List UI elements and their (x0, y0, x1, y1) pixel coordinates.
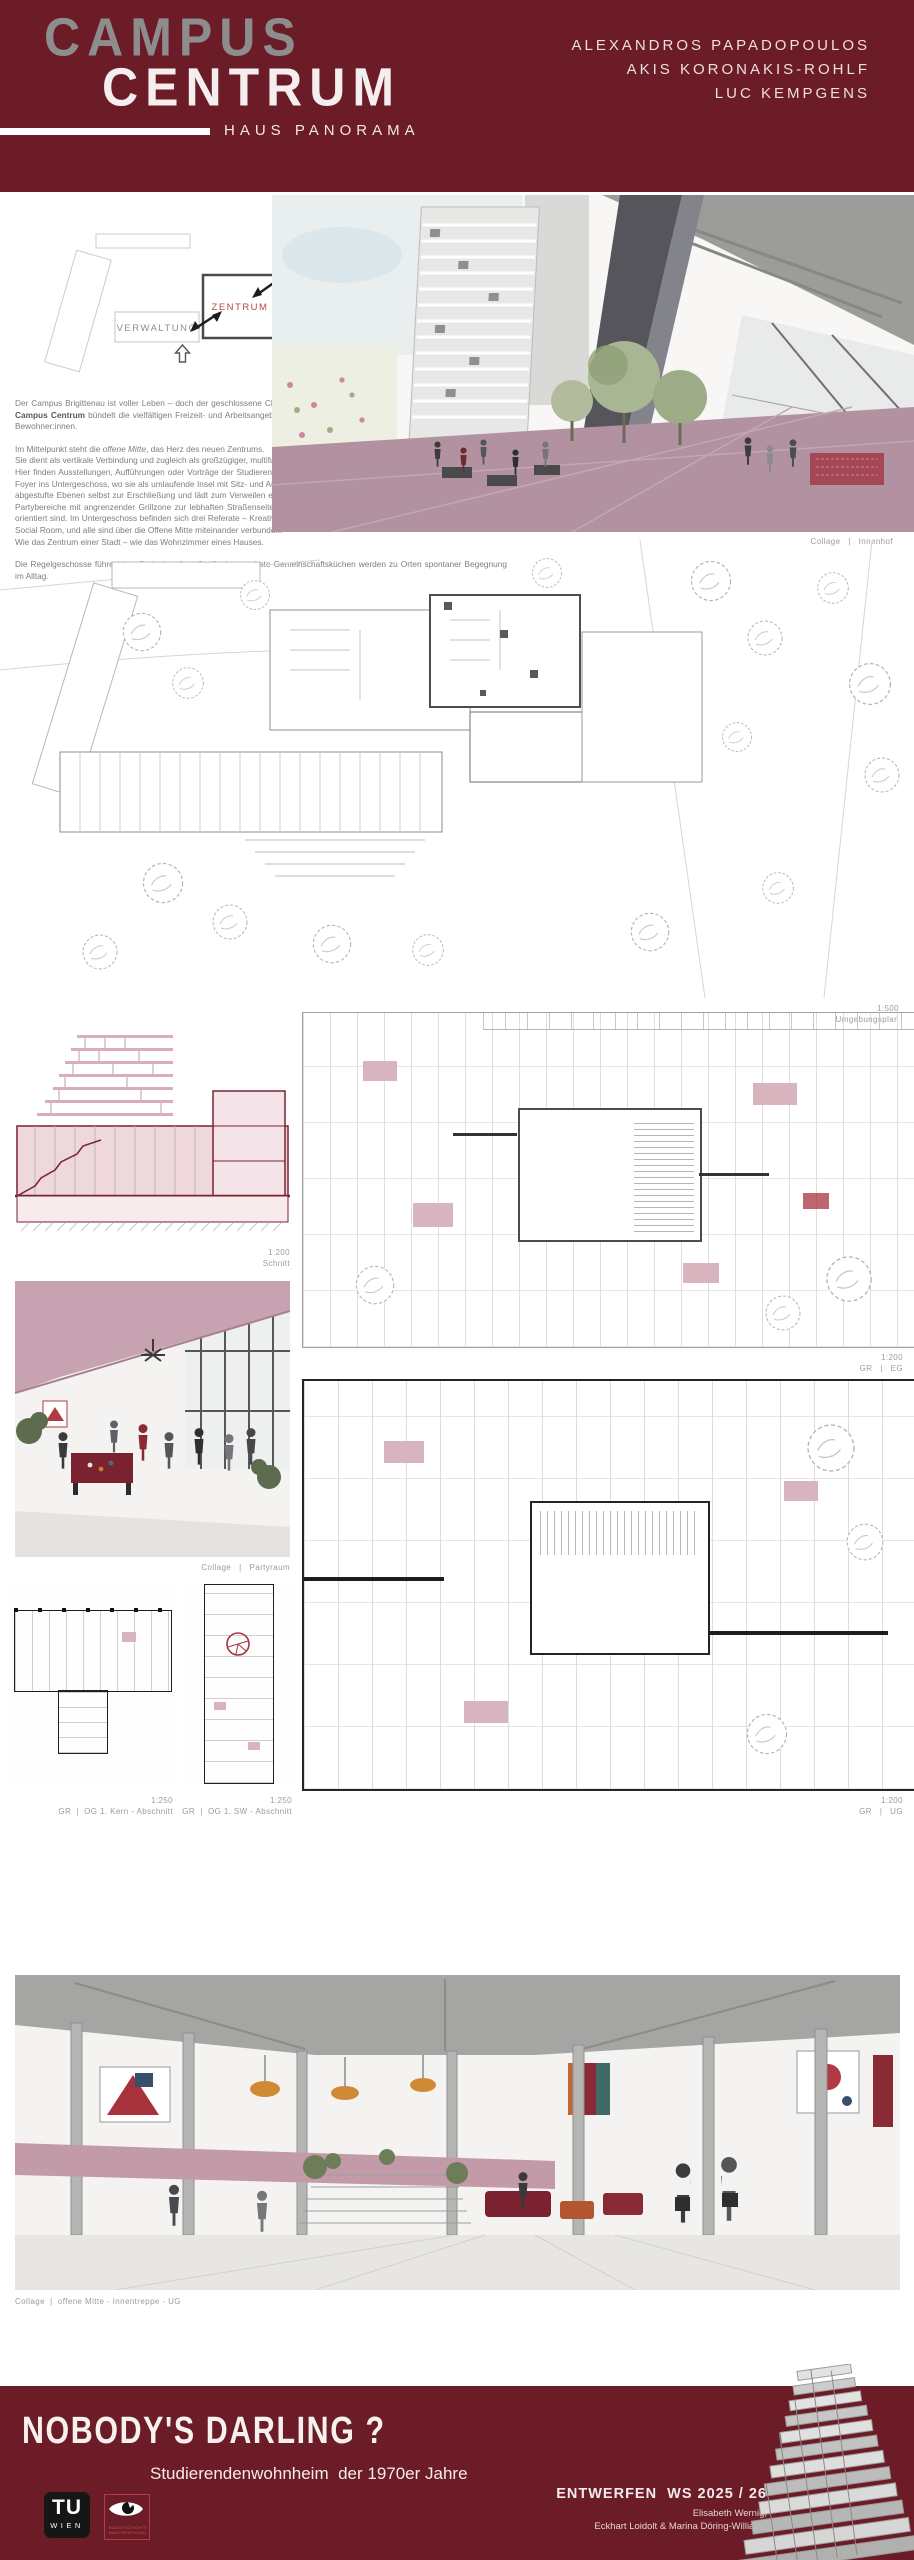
baugeschichte-eye-logo: BAUGESCHICHTEBAUFORSCHUNG (104, 2494, 150, 2540)
caption-gr-eg: 1:200GR | EG (860, 1352, 903, 1374)
caption-gr-ug: 1:200GR | UG (859, 1795, 903, 1817)
project-title: NOBODY'S DARLING ? (22, 2410, 386, 2453)
section-drawing (15, 1031, 290, 1243)
author-2: AKIS KORONAKIS-ROHLF (571, 58, 870, 82)
subtitle-haus-panorama: HAUS PANORAMA (224, 122, 420, 139)
plan-ug-trees (304, 1381, 914, 1789)
plan-og1-kern-furniture (122, 1632, 136, 1642)
up-arrow-icon (176, 345, 190, 362)
section-drawing-svg (15, 1031, 290, 1243)
plan-eg (302, 1012, 914, 1348)
caption-partyraum: Collage | Partyraum (201, 1562, 290, 1573)
header-band: CAMPUS CENTRUM HAUS PANORAMA ALEXANDROS … (0, 0, 914, 192)
author-3: LUC KEMPGENS (571, 82, 870, 106)
collage-offene-mitte (15, 1975, 900, 2290)
plan-og1-kern-columns (14, 1608, 170, 1612)
plan-og1-kern-band (14, 1610, 172, 1692)
author-list: ALEXANDROS PAPADOPOULOS AKIS KORONAKIS-R… (571, 34, 870, 106)
collage-partyraum (15, 1281, 290, 1557)
label-zentrum: ZENTRUM (212, 302, 269, 313)
collage-offene-mitte-drawing (15, 1975, 900, 2290)
project-subtitle: Studierendenwohnheim der 1970er Jahre (150, 2464, 468, 2484)
caption-og1-kern: 1:250GR | OG 1. Kern - Abschnitt (58, 1795, 173, 1817)
collage-partyraum-drawing (15, 1281, 290, 1557)
plan-ug (302, 1379, 914, 1791)
collage-innenhof (272, 195, 914, 532)
eye-logo-caption: BAUGESCHICHTEBAUFORSCHUNG (109, 2525, 147, 2535)
header-rule (0, 128, 210, 135)
site-plan-drawing (0, 540, 914, 998)
caption-schnitt: 1:200Schnitt (263, 1247, 290, 1269)
plan-og1-sw-spiral (186, 1582, 292, 1787)
collage-innenhof-drawing (272, 195, 914, 532)
site-plan (0, 540, 914, 998)
tower-montage (714, 2364, 914, 2560)
plan-og1-kern-stub (58, 1690, 108, 1754)
plan-og1-kern (12, 1582, 174, 1787)
presentation-poster: CAMPUS CENTRUM HAUS PANORAMA ALEXANDROS … (0, 0, 914, 2560)
label-verwaltung: VERWALTUNG (117, 323, 198, 334)
author-1: ALEXANDROS PAPADOPOULOS (571, 34, 870, 58)
plan-og1-sw (186, 1582, 292, 1787)
title-centrum: CENTRUM (102, 56, 401, 119)
plan-eg-trees (303, 1013, 914, 1347)
tu-wien-logo: TU WIEN (44, 2492, 90, 2538)
caption-offene-mitte: Collage | offene Mitte - Innentreppe - U… (15, 2296, 181, 2307)
eye-icon (105, 2495, 147, 2523)
caption-og1-sw: 1:250GR | OG 1. SW - Abschnitt (182, 1795, 292, 1817)
